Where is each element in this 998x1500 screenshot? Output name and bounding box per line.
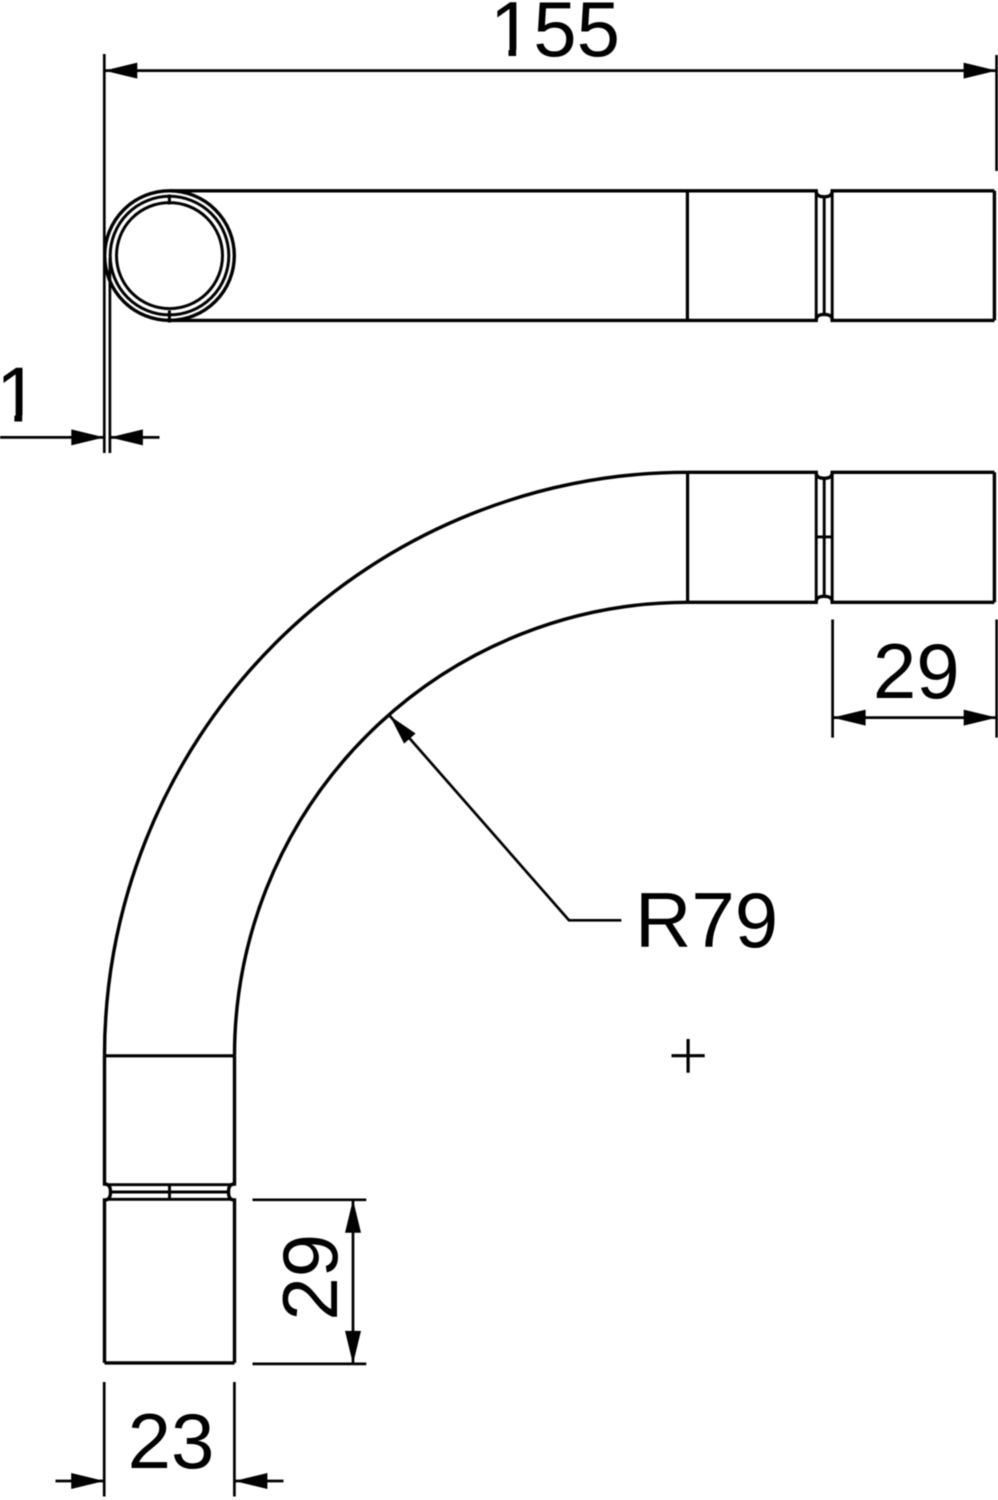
svg-text:155: 155 (490, 0, 620, 73)
svg-text:29: 29 (266, 1234, 354, 1321)
svg-text:23: 23 (128, 1397, 215, 1485)
svg-text:1: 1 (0, 351, 39, 439)
svg-text:R79: R79 (635, 876, 778, 964)
svg-text:29: 29 (873, 627, 960, 715)
